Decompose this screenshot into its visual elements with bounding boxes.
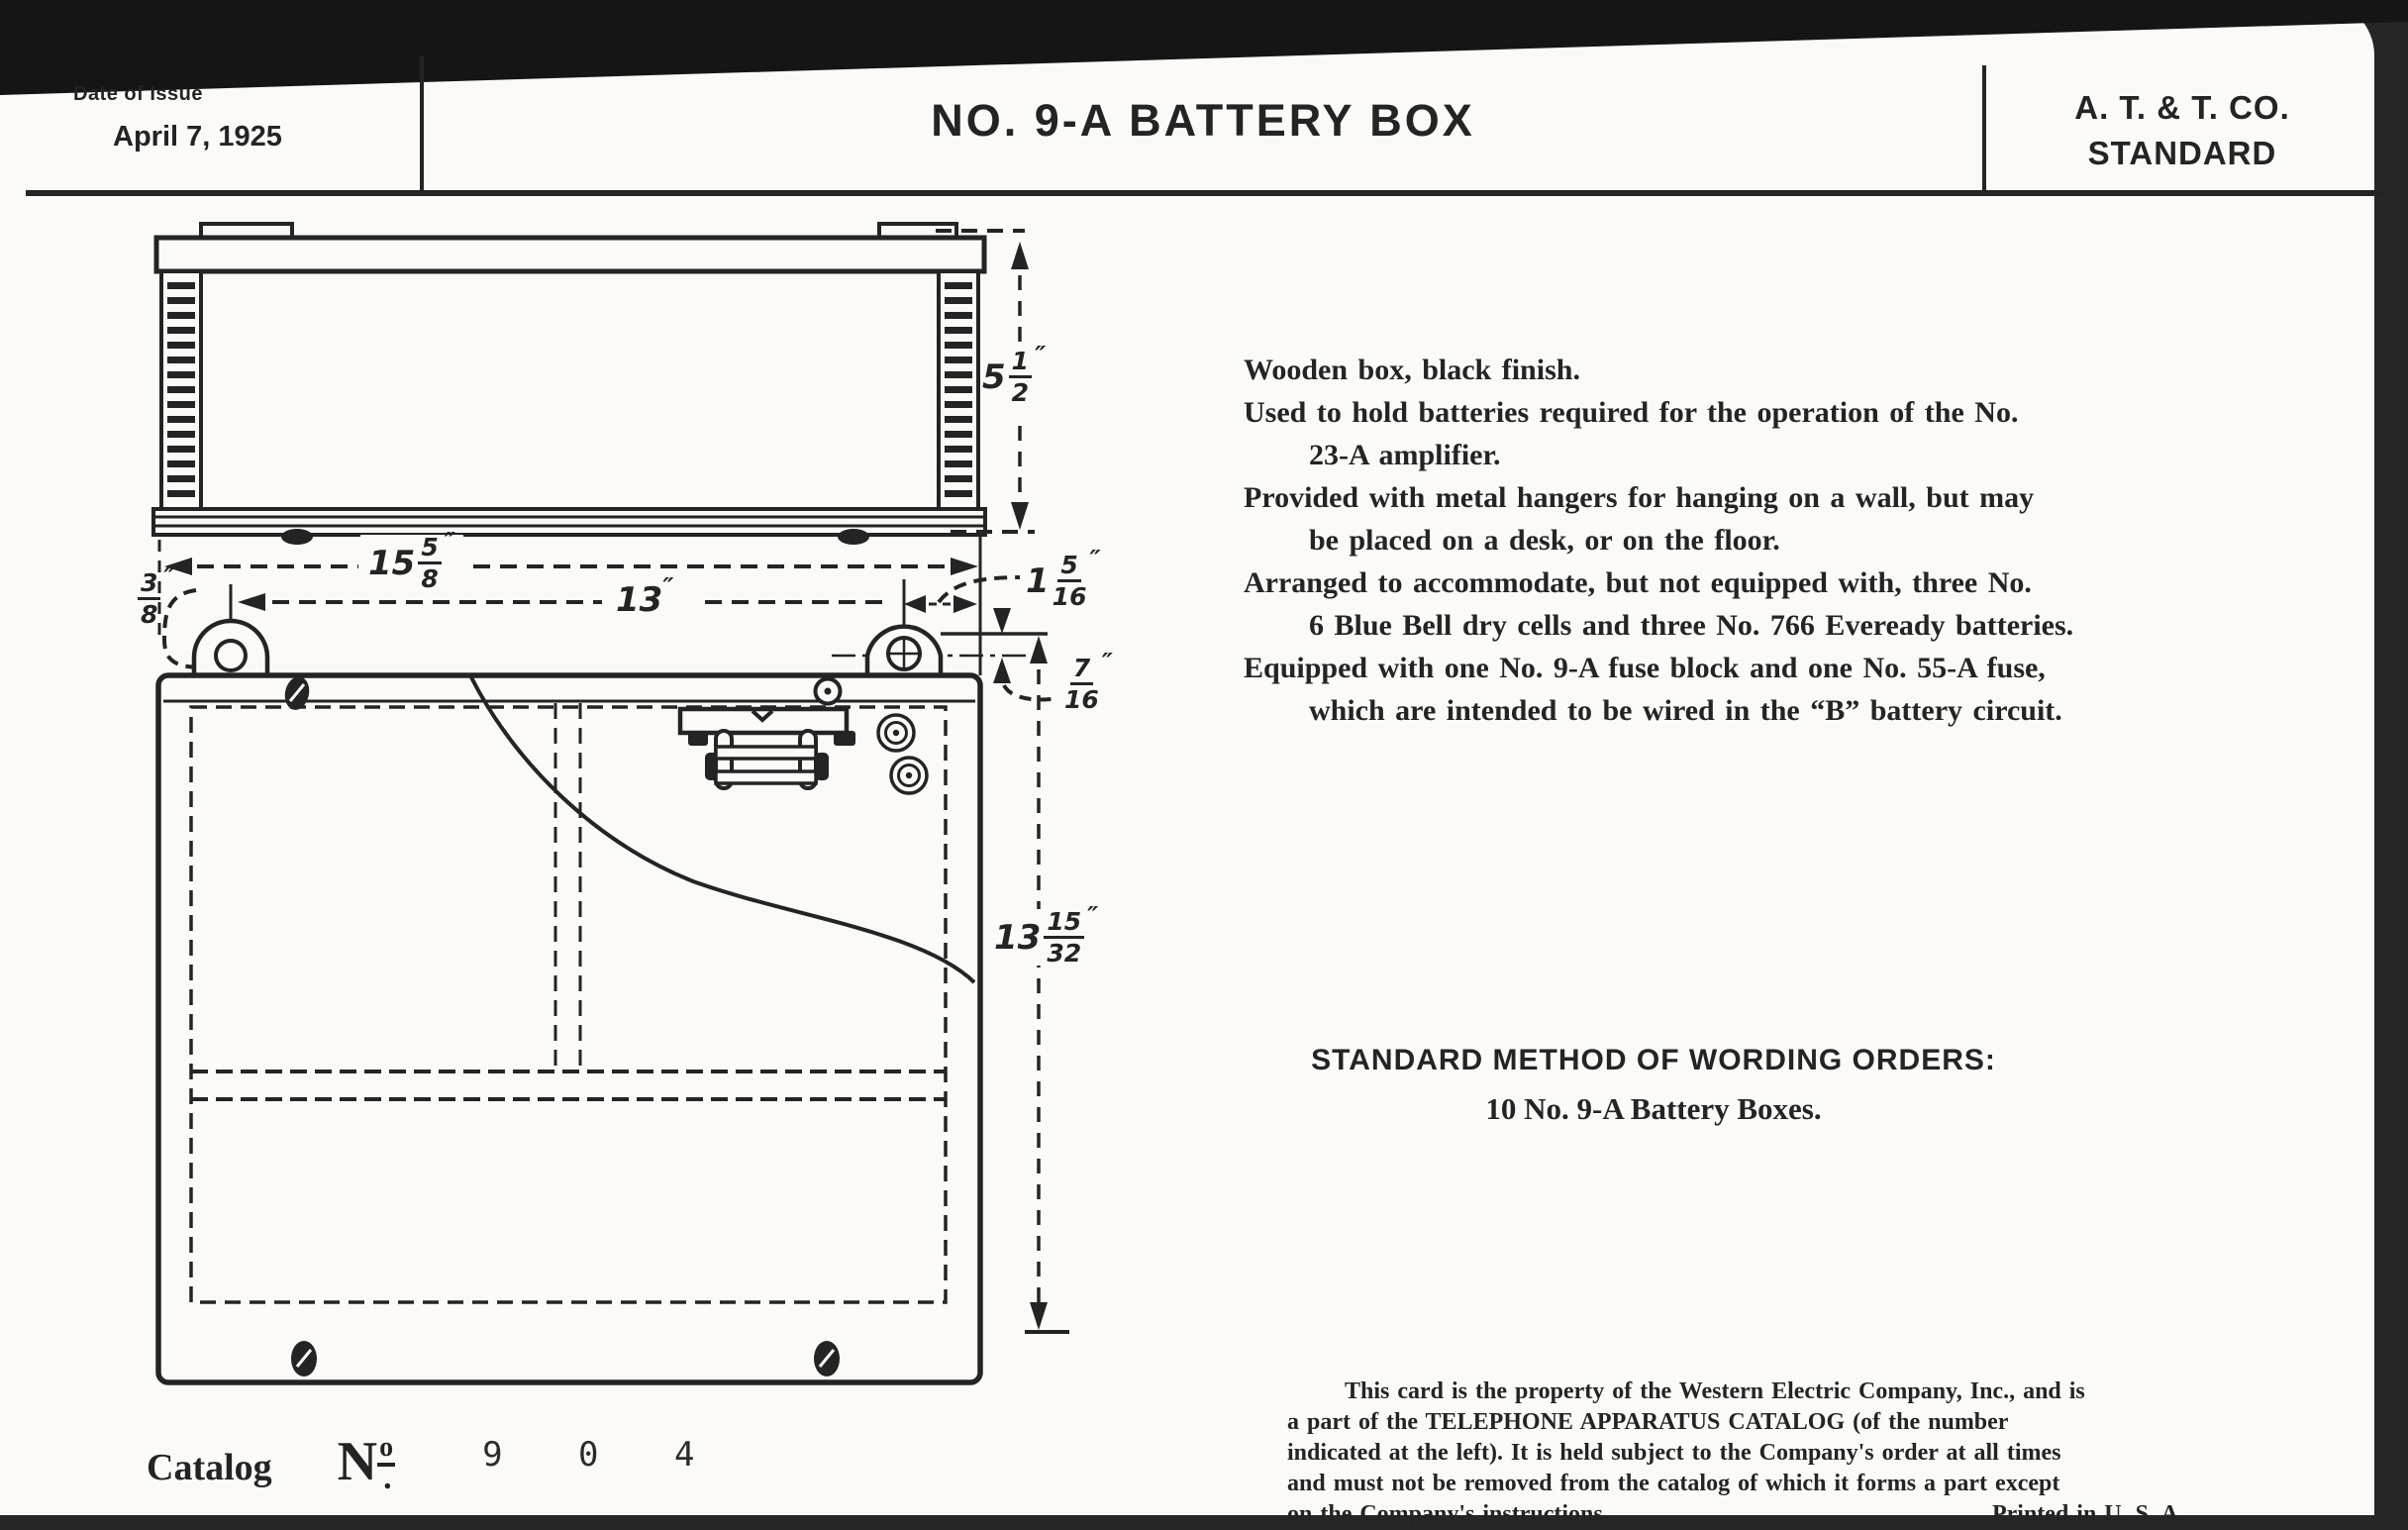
catalog-card-page: { "header": { "date_label": "Date of Iss…: [0, 0, 2408, 1515]
dim-whole: 15: [368, 544, 415, 583]
inch-mark: ″: [662, 572, 673, 601]
side-view-drawing: [153, 224, 985, 545]
fine-print-line: This card is the property of the Western…: [1287, 1377, 2184, 1407]
dim-label-edge-offset: 3 8 ″: [135, 570, 175, 627]
description-line: Arranged to accommodate, but not equippe…: [1244, 561, 2382, 604]
screw-bottom-right: [814, 1341, 840, 1377]
dim-whole: 13: [994, 918, 1041, 958]
inch-mark: ″: [1102, 648, 1113, 676]
inch-mark: ″: [445, 527, 455, 556]
dim-fraction: 15 32: [1044, 909, 1084, 966]
dim-label-side-height: 5 1 2 ″: [982, 349, 1046, 405]
dim-line-front-height: [1025, 636, 1069, 1332]
fine-print-block: This card is the property of the Western…: [1287, 1377, 2184, 1530]
number-abbreviation: No.: [338, 1432, 395, 1489]
description-line: 6 Blue Bell dry cells and three No. 766 …: [1244, 604, 2382, 647]
screw-bottom-left: [291, 1341, 317, 1377]
terminal-lower: [891, 758, 927, 793]
description-line: which are intended to be wired in the “B…: [1244, 689, 2382, 732]
fine-print-line: indicated at the left). It is held subje…: [1287, 1438, 2184, 1469]
fine-print-line: a part of the TELEPHONE APPARATUS CATALO…: [1287, 1407, 2184, 1438]
description-line: Provided with metal hangers for hanging …: [1244, 476, 2382, 519]
catalog-label: Catalog: [147, 1446, 272, 1489]
dim-whole: 1: [1026, 561, 1050, 601]
dim-whole: 13: [616, 580, 662, 620]
description-line: 23-A amplifier.: [1244, 434, 2382, 476]
wording-orders-heading: STANDARD METHOD OF WORDING ORDERS:: [1307, 1044, 2000, 1077]
terminal-upper: [878, 715, 914, 751]
front-view-drawing: [158, 621, 980, 1382]
description-block: Wooden box, black finish. Used to hold b…: [1244, 349, 2382, 732]
description-line: Equipped with one No. 9-A fuse block and…: [1244, 647, 2382, 689]
dim-label-front-height: 13 15 32 ″: [986, 909, 1106, 966]
dim-label-hanger-drop: 7 16 ″: [1061, 656, 1113, 712]
fine-print-line: and must not be removed from the catalog…: [1287, 1469, 2184, 1499]
catalog-number-value: 9 0 4: [482, 1435, 722, 1475]
inch-mark: ″: [1087, 901, 1098, 930]
catalog-number-row: Catalog No. 9 0 4: [147, 1432, 722, 1489]
dim-fraction: 7 16: [1064, 656, 1099, 712]
dim-fraction: 5 16: [1053, 553, 1087, 609]
battery-box-technical-drawing: [0, 0, 2408, 1515]
dim-label-hole-offset: 1 5 16 ″: [1026, 553, 1101, 609]
dim-label-overall-width: 15 5 8 ″: [360, 535, 463, 591]
dim-fraction: 1 2: [1009, 349, 1032, 405]
description-line: Used to hold batteries required for the …: [1244, 391, 2382, 434]
inch-mark: ″: [163, 562, 174, 591]
dim-label-hole-span: 13 ″: [608, 580, 682, 620]
inch-mark: ″: [1035, 341, 1046, 369]
inch-mark: ″: [1089, 545, 1100, 573]
description-line: Wooden box, black finish.: [1244, 349, 2382, 391]
description-line: be placed on a desk, or on the floor.: [1244, 519, 2382, 561]
dim-fraction: 3 8: [138, 570, 160, 627]
screw-small: [816, 679, 841, 704]
dim-whole: 5: [982, 357, 1006, 397]
dim-fraction: 5 8: [418, 535, 441, 591]
wording-orders-example: 10 No. 9-A Battery Boxes.: [1307, 1091, 2000, 1127]
hanger-hole-left: [216, 641, 246, 670]
